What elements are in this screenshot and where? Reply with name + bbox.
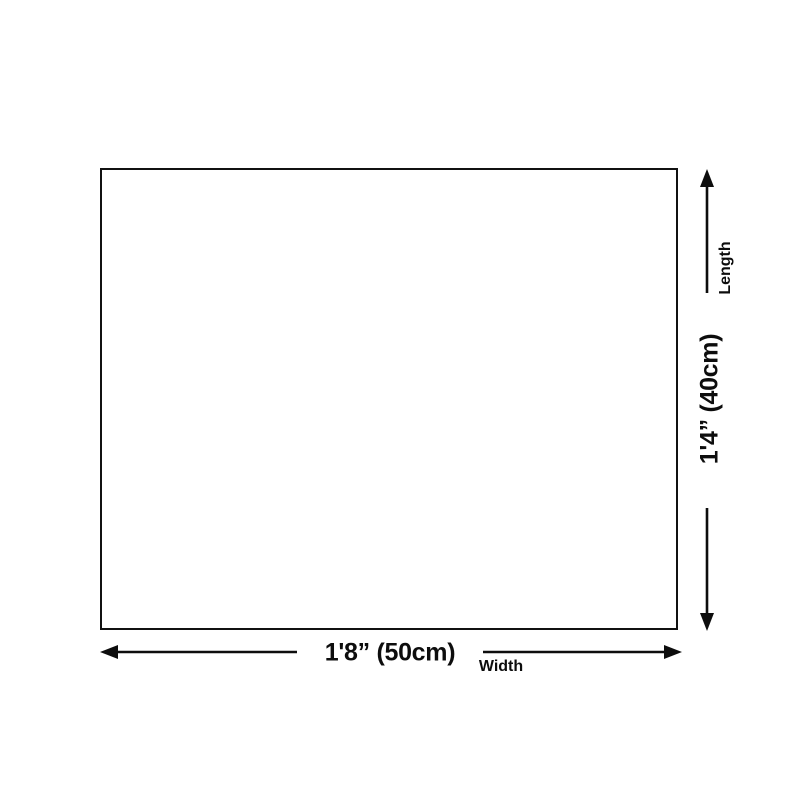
width-arrow-left-icon	[100, 645, 297, 659]
dimension-arrows	[0, 0, 800, 800]
length-dimension-value: 1'4” (40cm)	[696, 334, 725, 465]
dimension-diagram: 1'8” (50cm) Width 1'4” (40cm) Length	[0, 0, 800, 800]
width-dimension-label: Width	[479, 658, 523, 676]
width-arrow-right-icon	[483, 645, 682, 659]
length-dimension-label: Length	[717, 241, 735, 294]
length-arrow-down-icon	[700, 508, 714, 631]
length-arrow-up-icon	[700, 169, 714, 293]
width-dimension-value: 1'8” (50cm)	[325, 639, 456, 668]
